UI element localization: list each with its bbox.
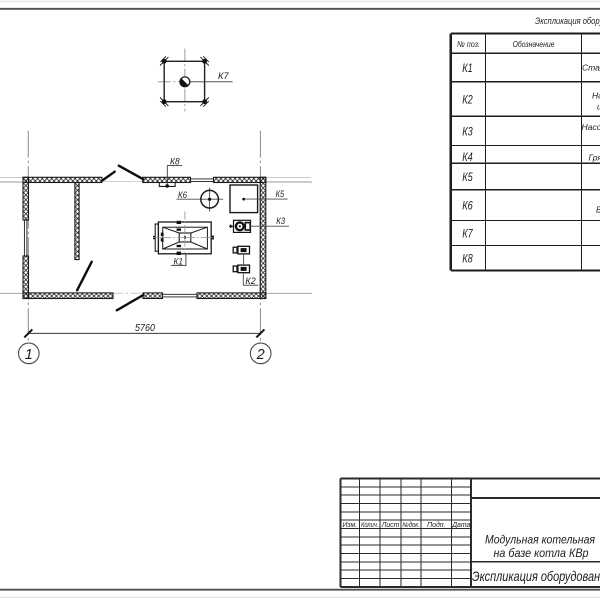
svg-text:К3: К3 [462,126,473,138]
svg-text:Колич.: Колич. [361,522,379,529]
svg-text:Дата: Дата [451,522,470,529]
svg-text:Вентилятор: Вентилятор [596,205,600,215]
svg-text:Грязевик: Грязевик [589,153,600,163]
svg-text:Обозначение: Обозначение [513,39,555,49]
svg-text:5760: 5760 [135,322,155,334]
svg-text:К6: К6 [178,190,187,200]
svg-text:К6: К6 [462,201,473,213]
svg-text:Экспликация оборудования: Экспликация оборудования [472,568,600,584]
svg-text:К7: К7 [218,71,230,81]
svg-text:на базе котла КВр: на базе котла КВр [494,546,589,560]
svg-text:Насос: Насос [592,90,600,100]
svg-text:Экспликация оборудования: Экспликация оборудования [535,16,600,26]
svg-text:К2: К2 [245,276,255,286]
svg-text:Насос циркуляционный: Насос циркуляционный [582,122,600,132]
svg-text:К4: К4 [462,152,473,164]
svg-text:Лист: Лист [381,522,400,529]
svg-text:К8: К8 [170,156,180,166]
svg-text:Изм.: Изм. [342,522,357,529]
svg-text:Модульная котельная: Модульная котельная [485,533,596,547]
svg-text:К8: К8 [462,254,473,266]
svg-text:Подп.: Подп. [427,521,445,529]
svg-text:К3: К3 [276,216,285,226]
svg-text:К1: К1 [462,63,473,75]
svg-text:1: 1 [25,347,33,363]
svg-text:№док.: №док. [402,521,420,529]
svg-text:К5: К5 [276,189,285,199]
svg-text:2: 2 [256,347,265,363]
svg-text:№ поз.: № поз. [457,39,480,49]
svg-text:К2: К2 [462,95,473,107]
svg-text:Стальной котел: Стальной котел [582,63,600,73]
svg-text:К1: К1 [174,256,184,266]
svg-text:К7: К7 [462,229,473,241]
svg-text:К5: К5 [462,172,473,184]
